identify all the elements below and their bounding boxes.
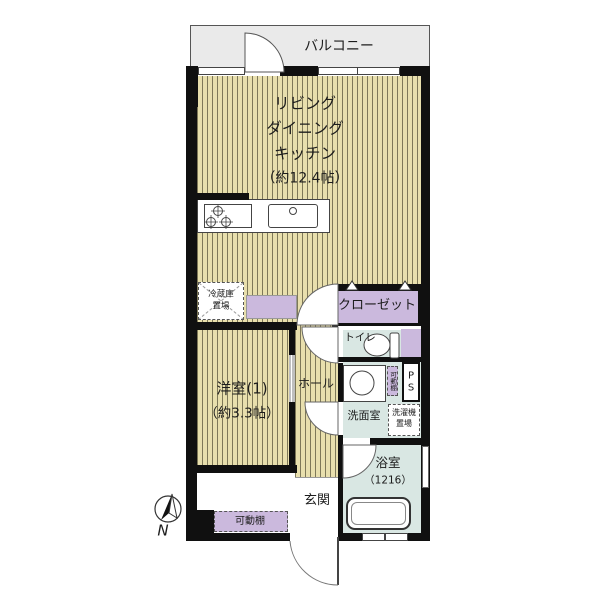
western-hall-wall — [289, 325, 295, 355]
kitchen-back-wall — [197, 193, 249, 200]
compass-circle — [155, 496, 181, 522]
hall-label: ホール — [298, 377, 334, 392]
bathtub — [346, 497, 411, 530]
sink-unit — [268, 204, 318, 228]
western-room-label: 洋室(1) — [216, 380, 267, 399]
toilet-side-cabinet — [401, 329, 421, 357]
ldk-label-line3: キッチン — [274, 144, 336, 163]
compass-needle-dark — [161, 494, 172, 520]
toilet-label: トイレ — [344, 331, 376, 344]
north-label: N — [157, 522, 168, 541]
balcony-label: バルコニー — [304, 38, 374, 56]
stove-unit — [204, 204, 252, 228]
entrance-label: 玄関 — [304, 493, 330, 509]
entrance-top-wall — [186, 465, 297, 473]
bathroom-top-wall — [370, 438, 421, 445]
compass-needle-light — [169, 494, 177, 518]
hall-right-wall — [338, 363, 343, 402]
laundry-label-line2: 置場 — [396, 419, 412, 429]
pipe-space-label-p: P — [408, 371, 414, 382]
western-room-size-label: （約3.3帖） — [204, 406, 279, 423]
window-mullion — [357, 67, 358, 75]
western-hall-wall — [289, 402, 295, 465]
closet-top-wall — [332, 284, 430, 291]
bathroom-window — [422, 446, 429, 488]
laundry-label-line1: 洗濯機 — [392, 408, 416, 418]
washroom-label: 洗面室 — [348, 409, 381, 423]
sliding-door — [289, 355, 295, 402]
entrance-shelf-label: 可動棚 — [235, 516, 265, 529]
bottom-wall — [338, 533, 362, 541]
closet-label: クローゼット — [338, 298, 416, 314]
ldk-cabinet — [246, 295, 297, 319]
fridge-label-line1: 冷蔵庫 — [208, 290, 234, 301]
bathroom-size-label: （1216） — [364, 474, 412, 487]
fridge-label-line2: 置場 — [212, 302, 229, 313]
ldk-size-label: （約12.4帖） — [261, 170, 348, 188]
entrance-door-arc — [290, 541, 338, 585]
ldk-label-line2: ダイニング — [266, 119, 344, 138]
ldk-label-line1: リビング — [274, 94, 336, 113]
bottom-wall — [186, 533, 290, 541]
entrance-step-line — [295, 477, 338, 478]
hall-floor — [295, 325, 338, 478]
pipe-space-label-s: S — [408, 383, 414, 394]
wall — [280, 66, 318, 76]
window — [198, 67, 245, 75]
hall-right-wall — [338, 435, 343, 533]
window — [385, 533, 408, 541]
bathroom-label: 浴室 — [375, 455, 400, 471]
window — [318, 67, 400, 75]
washroom-shelf-label: 可動棚 — [388, 371, 396, 391]
washbasin-counter — [343, 365, 386, 402]
floor-plan: バルコニー リビング ダイニング キッチン （約12.4帖） 冷蔵庫 置場 クロ… — [0, 0, 600, 600]
ldk-room-wall — [186, 322, 297, 330]
bottom-wall — [408, 533, 430, 541]
toilet-washroom-wall — [338, 357, 421, 362]
entrance-corner-wall — [197, 510, 214, 533]
window — [362, 533, 385, 541]
